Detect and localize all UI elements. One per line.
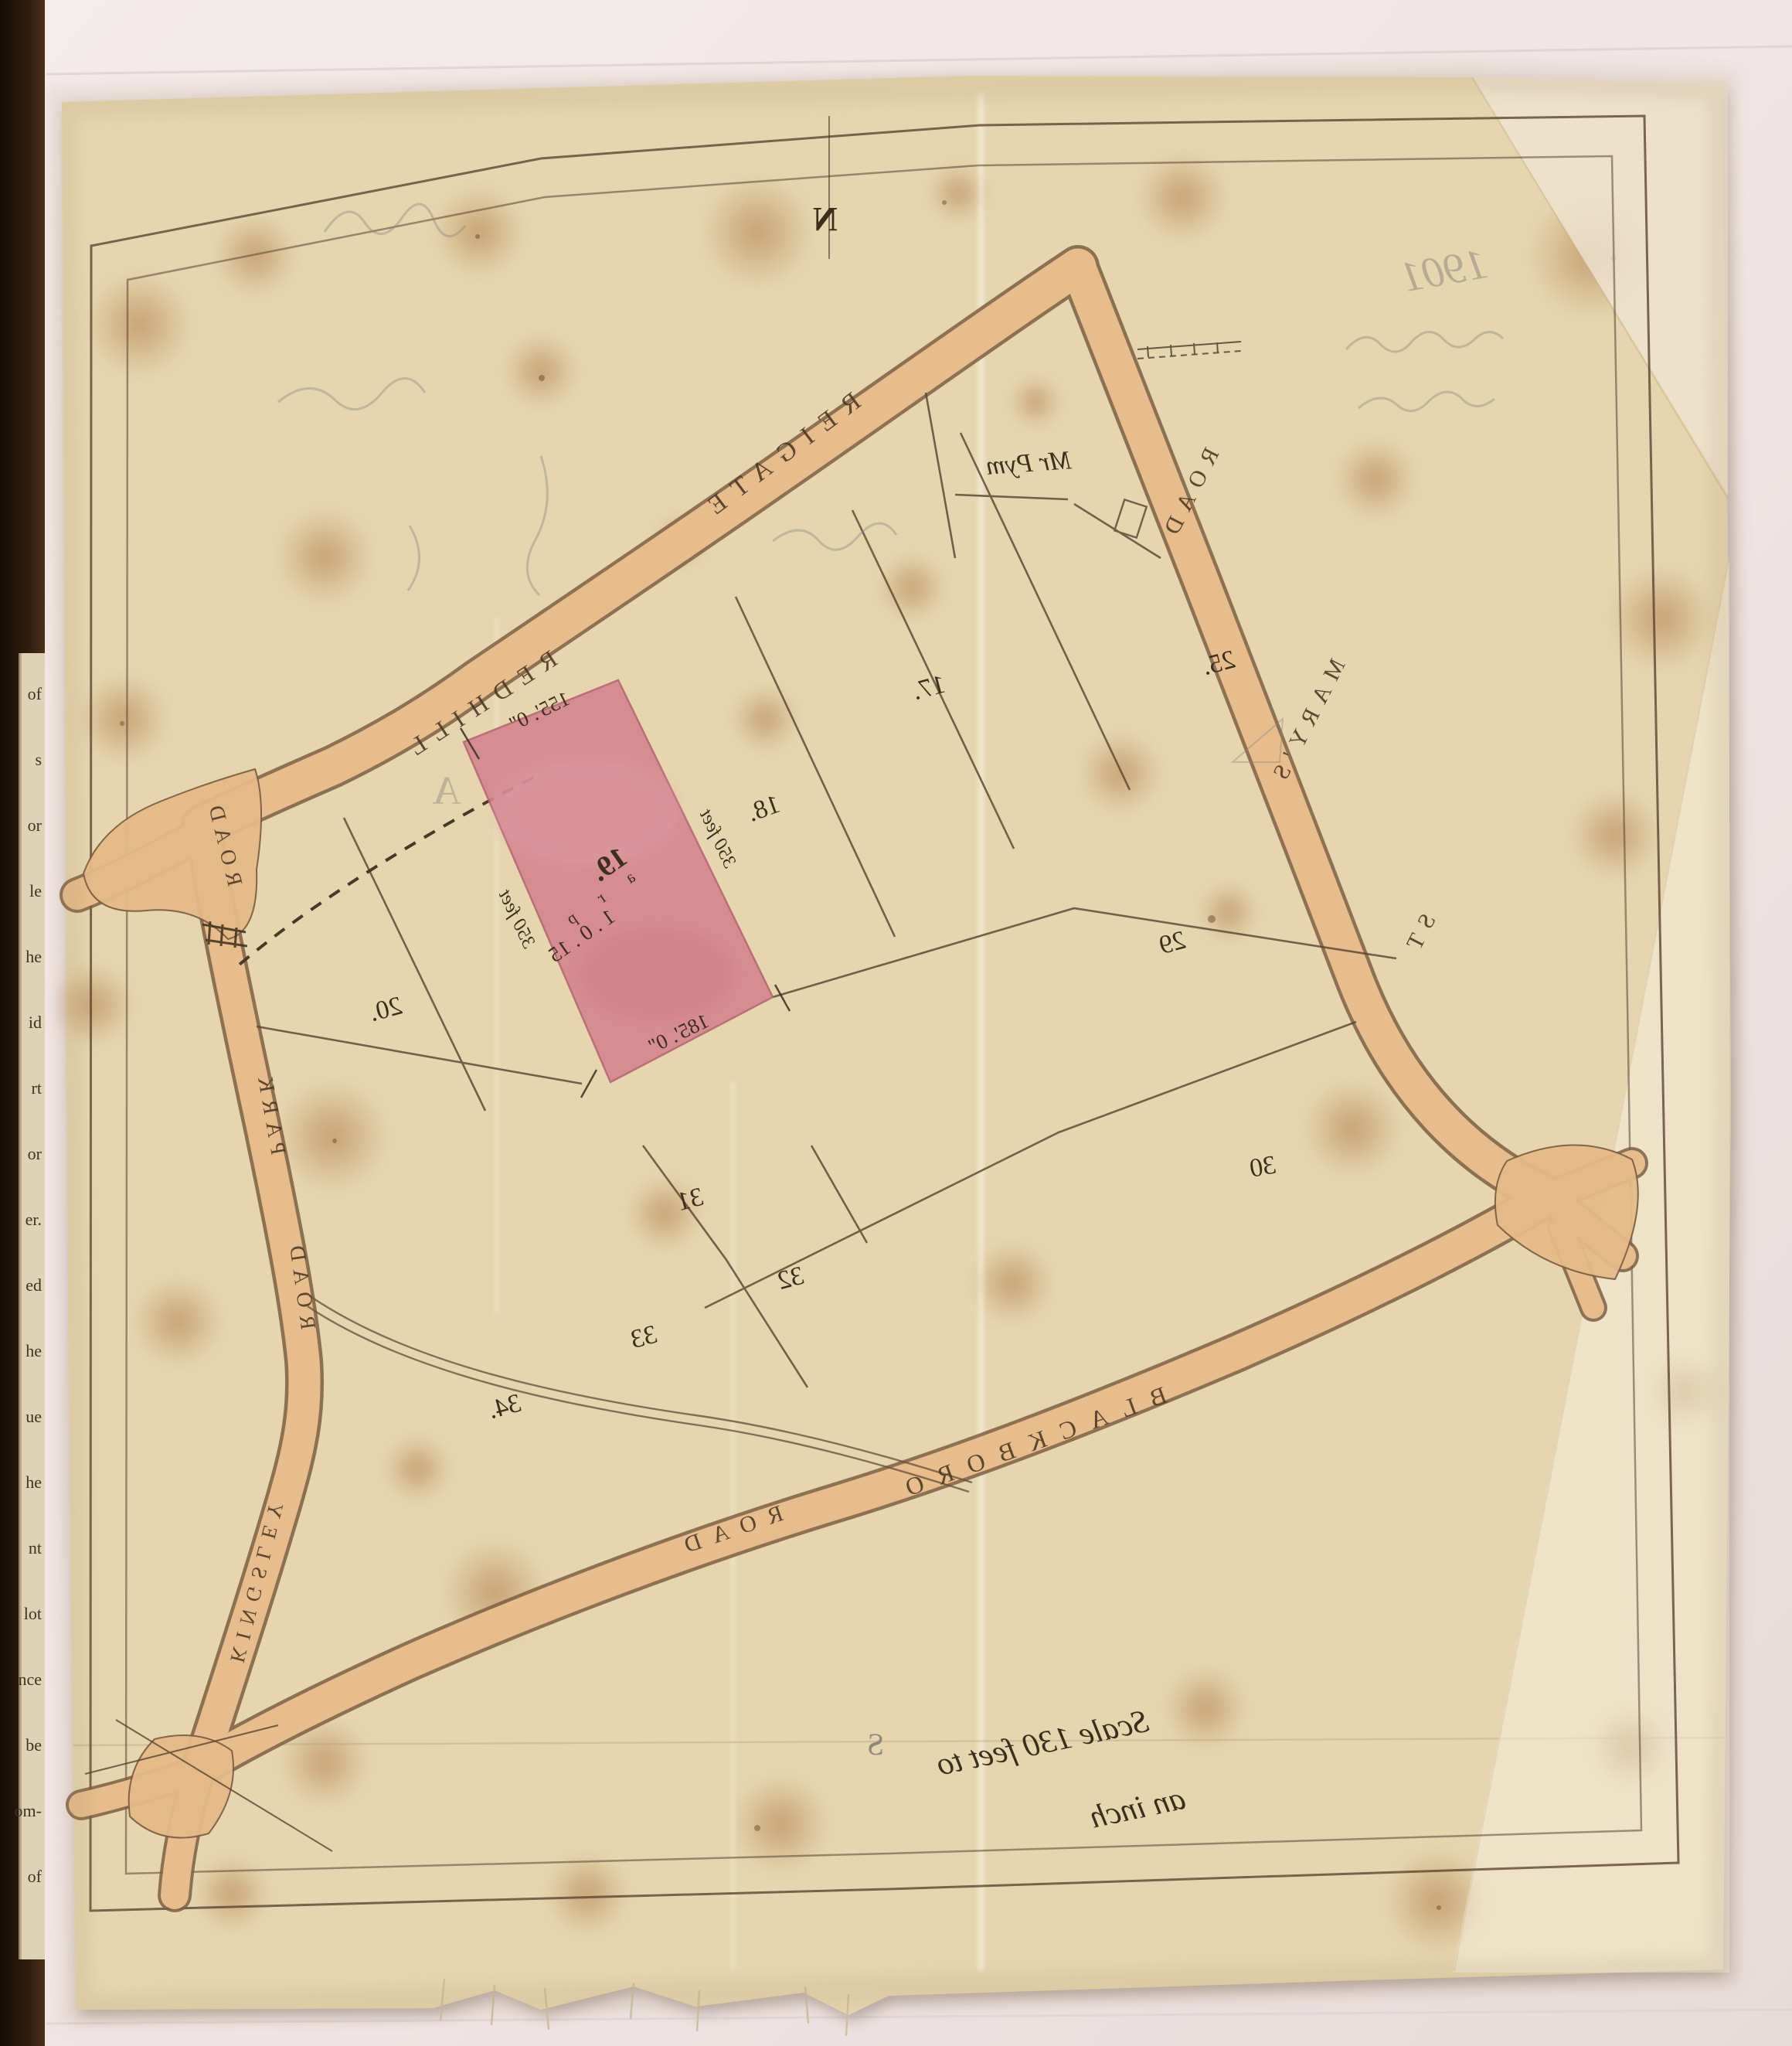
- fragment: of: [28, 684, 43, 703]
- fragment: of: [28, 1867, 43, 1886]
- fragment: or: [28, 815, 43, 835]
- pencil-mark-a: A: [432, 769, 461, 813]
- fragment: lot: [24, 1604, 42, 1623]
- fragment: nt: [29, 1538, 42, 1557]
- fragment: or: [28, 1144, 43, 1163]
- plot-number-30: 30: [1247, 1150, 1278, 1183]
- compass-south-label: S: [867, 1727, 884, 1762]
- fragment: he: [26, 947, 42, 966]
- fragment: er.: [26, 1210, 42, 1229]
- scanned-map-photo: N S REIGATE REDHILL ROAD ST MARY'S ROAD …: [0, 0, 1792, 2046]
- adjacent-page-sliver: [20, 653, 45, 1959]
- fragment: rt: [32, 1078, 42, 1098]
- fragment: om-: [15, 1801, 42, 1820]
- fragment: he: [26, 1472, 42, 1492]
- fragment: ue: [26, 1407, 42, 1426]
- fragment: id: [29, 1013, 42, 1032]
- fragment: nce: [18, 1670, 42, 1689]
- compass-north-label: N: [813, 200, 838, 238]
- fragment: s: [35, 750, 42, 769]
- owner-label: Mr Pym: [985, 446, 1073, 481]
- fragment: ed: [26, 1275, 42, 1295]
- map-scan-svg: N S REIGATE REDHILL ROAD ST MARY'S ROAD …: [0, 0, 1792, 2046]
- fragment: le: [29, 881, 42, 900]
- fragment: be: [26, 1735, 42, 1755]
- fragment: he: [26, 1341, 42, 1360]
